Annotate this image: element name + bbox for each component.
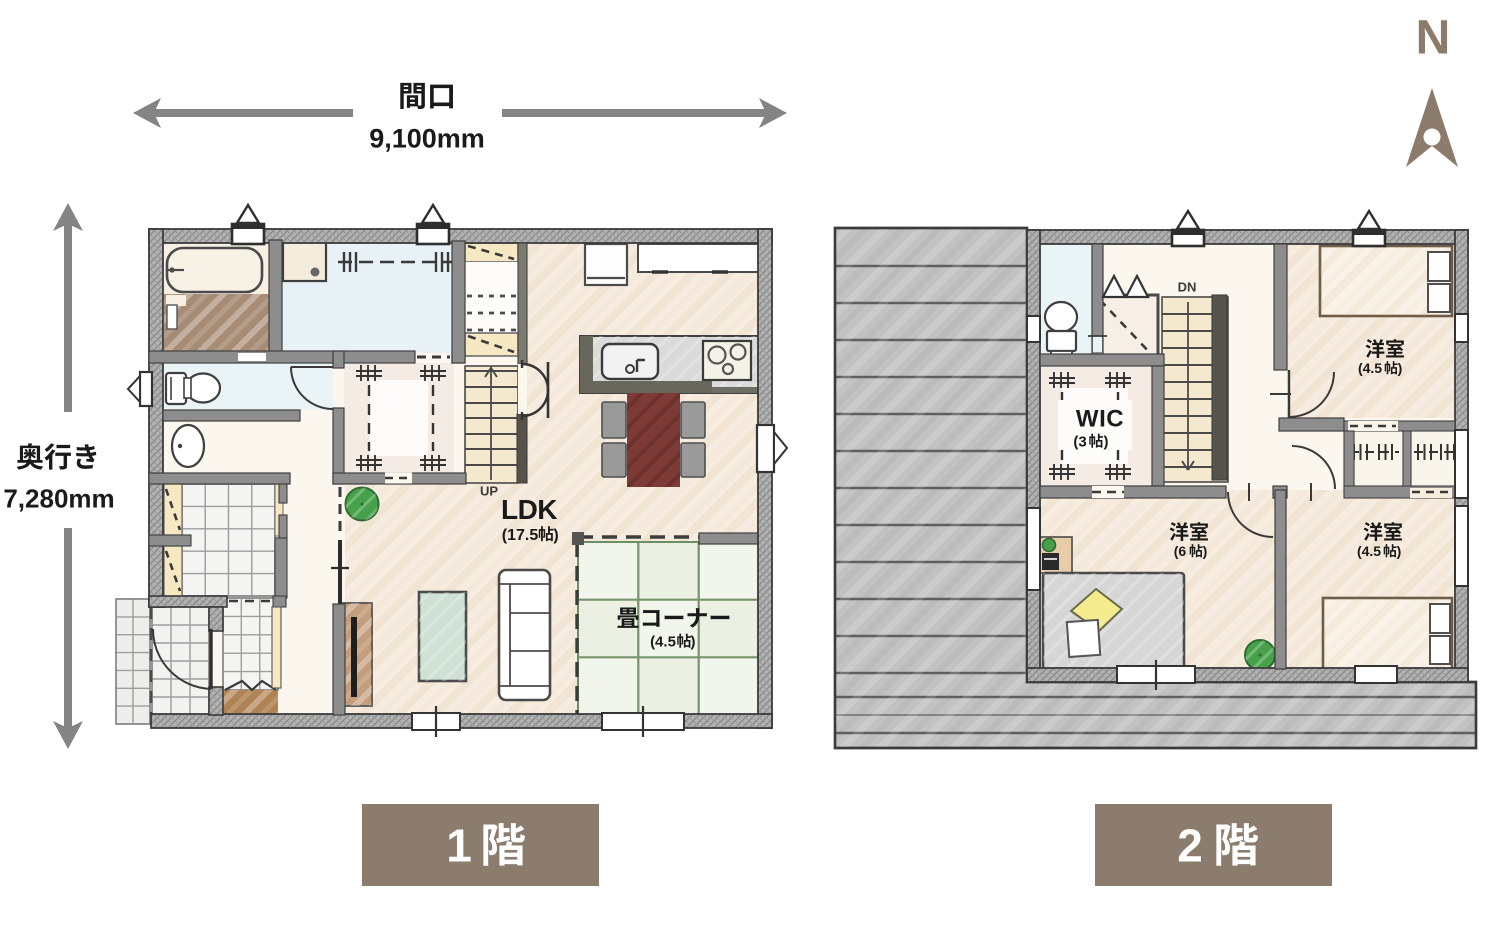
svg-text:WIC: WIC bbox=[1076, 406, 1124, 433]
svg-text:(6: (6 bbox=[1174, 543, 1187, 559]
svg-text:): ) bbox=[1104, 433, 1109, 450]
svg-text:): ) bbox=[1397, 543, 1402, 559]
svg-text:UP: UP bbox=[480, 484, 498, 499]
svg-text:(4.5: (4.5 bbox=[650, 633, 676, 650]
svg-text:(4.5: (4.5 bbox=[1357, 543, 1381, 559]
svg-text:): ) bbox=[1203, 543, 1208, 559]
svg-text:(3: (3 bbox=[1073, 433, 1086, 450]
svg-text:2: 2 bbox=[1177, 820, 1203, 872]
svg-text:): ) bbox=[553, 527, 558, 544]
svg-text:N: N bbox=[1416, 11, 1451, 64]
svg-text:7,280mm: 7,280mm bbox=[3, 483, 114, 513]
svg-text:LDK: LDK bbox=[501, 494, 557, 525]
svg-text:9,100mm: 9,100mm bbox=[369, 124, 485, 154]
svg-text:): ) bbox=[1398, 360, 1403, 376]
svg-text:): ) bbox=[691, 633, 696, 650]
svg-text:(4.5: (4.5 bbox=[1358, 360, 1382, 376]
svg-text:DN: DN bbox=[1178, 280, 1197, 295]
svg-text:1: 1 bbox=[446, 820, 472, 872]
svg-text:(17.5: (17.5 bbox=[502, 527, 539, 544]
